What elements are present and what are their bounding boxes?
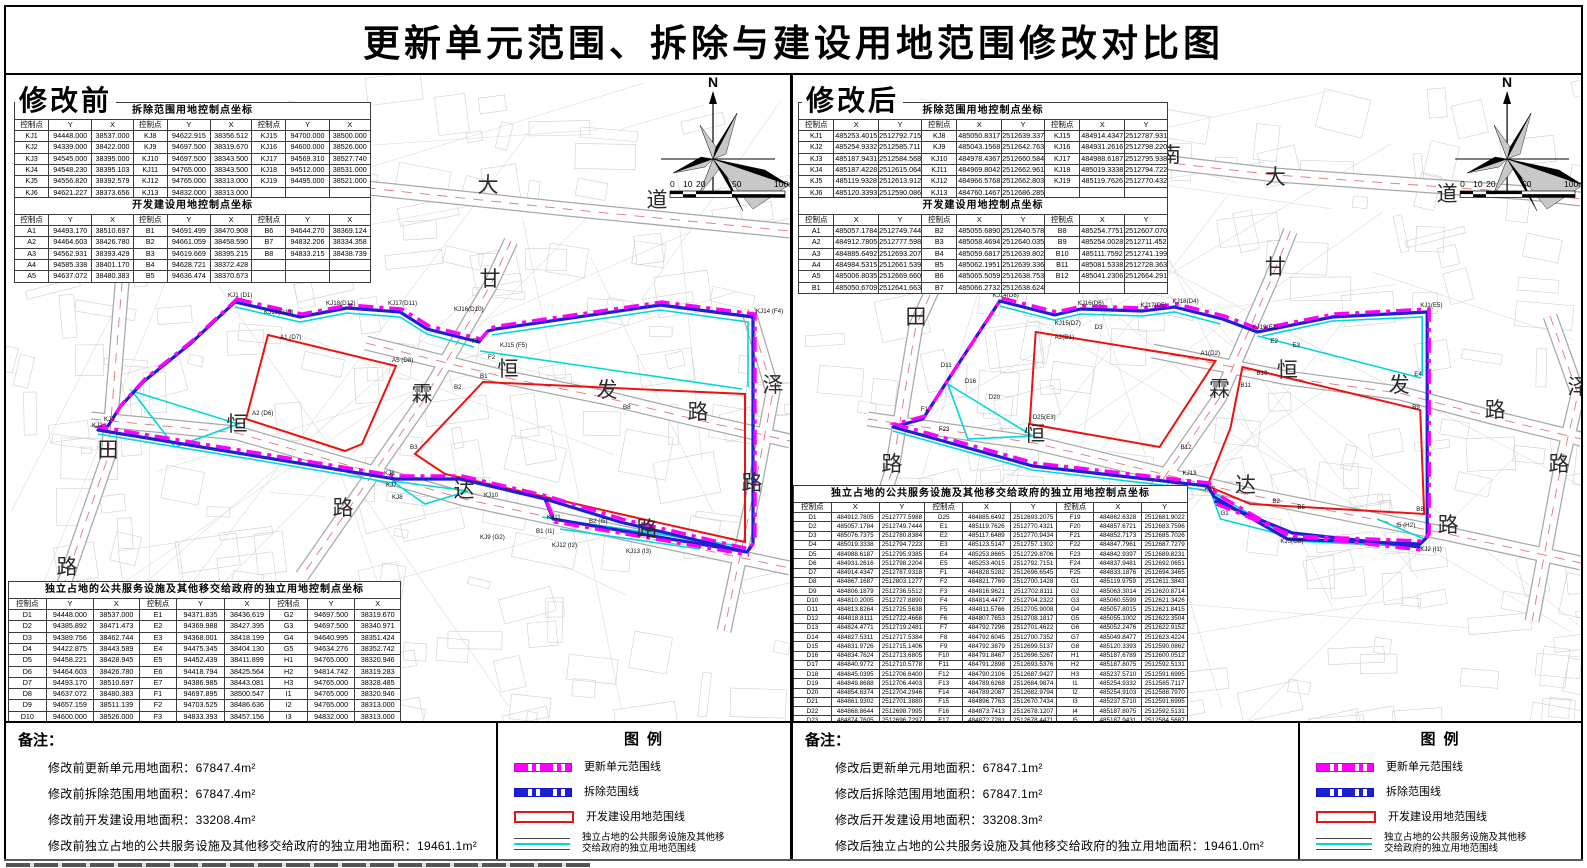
table-row: D13484824.47712512719.2481F7484792.72962… [794,623,1188,632]
column-header: X [1094,502,1142,513]
cell: D18 [794,670,832,679]
column-header: Y [1125,119,1168,131]
notes-after: 备注：修改后更新单元用地面积：67847.1m²修改后拆除范围用地面积：6784… [793,723,1298,859]
cell: E6 [139,666,177,677]
cell: 2512706.4403 [879,679,925,688]
cell: 485050.6709 [834,282,879,293]
cell: B9 [1044,237,1079,248]
legend-label: 拆除范围线 [584,783,639,799]
column-header: 控制点 [921,119,956,131]
street-label: 路 [1438,513,1459,537]
cell: 485117.6489 [963,531,1011,540]
cell: I3 [1056,697,1094,706]
control-point-label: KJ3 [104,416,115,423]
legend-title: 图例 [514,728,780,749]
note-line: 修改前更新单元用地面积：67847.4m² [48,759,496,776]
control-point-label: B3 [410,444,418,451]
cell: 2512729.8706 [1010,550,1056,559]
cell: 484827.5311 [831,633,879,642]
cell: 94493.170 [46,677,93,688]
street-label: 泽 [1568,375,1581,399]
legend-label: 独立占地的公共服务设施及其他移交给政府的独立用地范围线 [1384,833,1527,854]
table-row: KJ494548.23038395.103KJ1194765.00038343.… [15,164,371,175]
cell: 94661.059 [167,237,210,248]
column-header: Y [1125,214,1168,226]
cell: 94422.875 [46,643,93,654]
cell: 38426.780 [94,666,140,677]
cell: 2512621.3426 [1142,596,1188,605]
street-label: 道 [1437,182,1458,206]
cell: F2 [925,577,963,586]
cell: 2512623.4224 [1142,633,1188,642]
cell: 2512795.9385 [879,550,925,559]
cell: A4 [799,259,834,270]
control-point-label: KJ17(D11) [388,300,417,307]
cell: 38425.564 [224,666,270,677]
cell: 94585.338 [49,259,92,270]
cell: F8 [925,633,963,642]
cell: 484811.5766 [963,605,1011,614]
cell: 94832.206 [286,237,329,248]
cell: 485237.5710 [1094,697,1142,706]
control-point-label: B12 [1181,444,1193,451]
table-row: D3485076.73752512780.8384E2485117.648925… [794,531,1188,540]
control-point-label: D16 [965,378,977,385]
cell: 2512685.7026 [1142,531,1188,540]
cell: B3 [133,248,167,259]
cell: 2512794.7223 [879,540,925,549]
cell: G7 [1056,633,1094,642]
control-point-label: B11 [1240,382,1251,389]
cell: F6 [925,614,963,623]
cell: 485006.8035 [834,271,879,282]
street-label: 路 [1485,398,1506,422]
cell: G3 [1056,596,1094,605]
cell: 94765.000 [307,655,354,666]
cell: E1 [139,610,177,621]
cell: 2512693.2075 [1010,513,1056,522]
cell: KJ4 [799,164,834,175]
cell: 484868.8644 [831,707,879,716]
control-point-label: E4 [1414,371,1422,378]
cell: 38392.579 [92,176,133,187]
cell: D19 [794,679,832,688]
cell: A3 [799,248,834,259]
table-row: A2484912.78052512777.5988B3485058.469425… [799,237,1168,248]
cell: 94697.895 [177,689,224,700]
cell: 2512607.0700 [1125,226,1168,237]
cell [1080,282,1125,293]
cell [1125,282,1168,293]
cell: 2512719.2481 [879,623,925,632]
street-label: 路 [637,517,658,541]
street-label: 甘 [1265,255,1286,279]
table-row: KJ2485254.93322512585.7117KJ9485043.1568… [799,142,1168,153]
street-label: 恒 [227,412,248,436]
cell: 38500.000 [329,131,370,142]
cell: 38351.424 [355,632,401,643]
cell: 2512770.4321 [1010,522,1056,531]
cell: 38438.739 [329,248,370,259]
control-point-label: E3 [1292,342,1300,349]
legend-item-development: 开发建设用地范围线 [1316,808,1571,824]
cell: 94562.931 [49,248,92,259]
cell: 2512678.1207 [1010,707,1056,716]
cell: B10 [1044,248,1079,259]
street-label: 大 [1265,165,1286,189]
panel-after: KJ14(D8)KJ15(D7)KJ16(D6)KJ17(D5)KJ18(D4)… [790,71,1581,859]
cell: G6 [1056,623,1094,632]
cell: 2512664.2919 [1125,271,1168,282]
cell: D3 [9,632,47,643]
cell: 2512704.2322 [1010,596,1056,605]
column-header: 控制点 [15,214,49,226]
cell: 485041.2306 [1080,271,1125,282]
cell: F22 [1056,540,1094,549]
cell: 484828.5282 [963,568,1011,577]
column-header: Y [46,598,93,610]
cell: 38480.383 [94,689,140,700]
street-label: 路 [333,496,354,520]
cell: 38458.590 [210,237,251,248]
cell: D3 [794,531,832,540]
table-title: 开发建设用地控制点坐标 [15,198,371,215]
cell: 38428.945 [94,655,140,666]
cell: 485254.0028 [1080,237,1125,248]
column-header: 控制点 [794,502,832,513]
cell: 484814.4477 [963,596,1011,605]
cell: F10 [925,651,963,660]
cell: 2512600.0512 [1142,651,1188,660]
cell: 2512662.8035 [1002,176,1045,187]
cell: 38319.670 [210,142,251,153]
cell: KJ4 [15,164,49,175]
table-row: D21484861.93022512701.3880F15484896.7763… [794,697,1188,706]
cell: G4 [1056,605,1094,614]
demolition-line-swatch-icon [1316,788,1374,797]
table-row: D194448.00038537.000E194371.83538436.619… [9,610,401,621]
street-label: 路 [1549,452,1570,476]
update-line-swatch-icon [1316,763,1374,772]
control-point-label: F1 [921,406,929,413]
cell: F13 [925,679,963,688]
cell: H2 [270,666,308,677]
cell [286,271,329,282]
cell: KJ11 [921,164,956,175]
table-row: D9484806.18792512736.5512F3484816.962125… [794,587,1188,596]
cell: 2512727.8890 [879,596,925,605]
control-point-label: KJ9 (G2) [480,534,505,541]
table-row: KJ294339.00038422.000KJ994697.50038319.6… [15,142,371,153]
cell: D11 [794,605,832,614]
control-point-label: KJ5(G8) [1280,538,1303,545]
cell: F11 [925,660,963,669]
column-header: X [834,119,879,131]
legend-item-independent: 独立占地的公共服务设施及其他移交给政府的独立用地范围线 [514,833,780,854]
cell: 2512684.9874 [1010,679,1056,688]
column-header: Y [879,502,925,513]
table-row: D294385.89238471.473E294369.98838427.395… [9,621,401,632]
cell: 2512706.6400 [879,670,925,679]
street-label: 田 [905,305,926,329]
cell: 2512757.1302 [1010,540,1056,549]
column-header: Y [167,119,210,131]
cell: 485058.4694 [957,237,1002,248]
cell: KJ9 [133,142,167,153]
note-line: 修改后拆除范围用地面积：67847.1m² [835,785,1298,802]
cell: 484873.7413 [963,707,1011,716]
cell: KJ11 [133,164,167,175]
control-point-label: KJ13 (I3) [626,548,651,555]
control-point-label: A1 (D7) [280,334,301,341]
cell: 94545.000 [49,153,92,164]
notes-title: 备注： [18,729,496,750]
cell: 485119.7626 [963,522,1011,531]
cell: G8 [1056,642,1094,651]
table-row: D12484818.81112512722.4668F6484807.76532… [794,614,1188,623]
legend-before: 图例更新单元范围线拆除范围线开发建设用地范围线独立占地的公共服务设施及其他移交给… [496,723,790,859]
cell: 94493.170 [49,226,92,237]
cell: KJ17 [252,153,286,164]
control-point-label: D3 [1095,324,1103,331]
cell: 2512622.9152 [1142,623,1188,632]
north-label: N [1502,74,1512,90]
cell: 38343.500 [210,153,251,164]
cell: 38340.971 [355,621,401,632]
cell: 94644.270 [286,226,329,237]
column-header: X [329,119,370,131]
cell: 38462.744 [94,632,140,643]
control-point-label: A2(D1) [1055,334,1075,341]
cell: 38319.283 [355,666,401,677]
cell: 484824.4771 [831,623,879,632]
cell: 94697.500 [167,142,210,153]
cell: 94339.000 [49,142,92,153]
cell: 485111.7592 [1080,248,1125,259]
cell: 38471.473 [94,621,140,632]
cell: F15 [925,697,963,706]
cell: B11 [1044,259,1079,270]
cell: 94371.835 [177,610,224,621]
control-point-label: KJ18(D12) [326,300,356,307]
panel-label-before: 修改前 [15,79,116,119]
cell: I2 [1056,688,1094,697]
table-row: A494585.33838401.170B494628.72138372.428 [15,259,371,270]
cell: H3 [1056,670,1094,679]
cell: 484789.2087 [963,688,1011,697]
cell: 484842.9397 [1094,550,1142,559]
cell: 38369.124 [329,226,370,237]
cell: 2512585.7117 [879,142,922,153]
cell: 485049.8477 [1094,633,1142,642]
cell: D7 [794,568,832,577]
cell: D21 [794,697,832,706]
legend-label: 拆除范围线 [1386,783,1441,799]
cell: 484837.9481 [1094,559,1142,568]
cell: 2512661.5390 [879,259,922,270]
cell: 484792.6045 [963,633,1011,642]
cell: 38395.215 [210,248,251,259]
cell: 484885.6492 [963,513,1011,522]
cell: 94389.756 [46,632,93,643]
cell: 94512.000 [286,164,329,175]
cell: 2512736.5512 [879,587,925,596]
cell: 2512792.7151 [1010,559,1056,568]
cell: E3 [925,540,963,549]
table-row: A394562.93138393.429B394619.66938395.215… [15,248,371,259]
legend-title: 图例 [1316,728,1571,749]
column-header: X [355,598,401,610]
control-point-label: KJ1(E5) [1420,302,1442,309]
cell: B4 [921,248,956,259]
cell: 94697.500 [167,153,210,164]
scale-tick-label: 10 [1473,179,1483,189]
cell: 2512642.7634 [1002,142,1045,153]
control-point-label: F2 [488,354,496,361]
table-title: 开发建设用地控制点坐标 [799,198,1168,215]
cell: 2512689.8231 [1142,550,1188,559]
cell: 485081.5338 [1080,259,1125,270]
cell: 38313.000 [355,700,401,711]
cell: 2512660.5849 [1002,153,1045,164]
cell: 2512591.6995 [1142,697,1188,706]
cell: F3 [925,587,963,596]
cell: 2512640.5787 [1002,226,1045,237]
scale-tick-label: 50 [732,179,742,189]
cell: 485059.6817 [957,248,1002,259]
column-header: 控制点 [133,119,167,131]
cell: B8 [252,248,286,259]
cell: 2512787.9318 [1125,131,1168,142]
cell: 2512641.6630 [879,282,922,293]
cell: 484845.0395 [831,670,879,679]
cell: D9 [9,700,47,711]
cell: KJ1 [799,131,834,142]
street-label: 恒 [1277,358,1298,382]
column-header: X [834,214,879,226]
cell: 485237.5710 [1094,670,1142,679]
cell: 485254.9103 [1094,688,1142,697]
cell [286,259,329,270]
table-row: D5484988.61872512795.9385E4485253.866525… [794,550,1188,559]
control-point-label: KJ16(D10) [454,306,484,313]
cell: D16 [794,651,832,660]
street-label: 恒 [498,357,519,381]
cell: 2512590.0862 [1142,642,1188,651]
cell: 484912.7805 [831,513,879,522]
cell: A5 [15,271,49,282]
cell: KJ17 [1044,153,1079,164]
cell: KJ8 [921,131,956,142]
cell: 38422.000 [92,142,133,153]
cell: 2512715.1406 [879,642,925,651]
cell: 94765.000 [307,700,354,711]
cell [329,259,370,270]
table-row: D18484845.03952512706.6400F12484790.2106… [794,670,1188,679]
cell: 485119.9328 [834,176,879,187]
cell: 485019.3338 [1080,164,1125,175]
cell: 2512777.5988 [879,237,922,248]
control-point-label: D11 [941,362,952,369]
cell: H1 [1056,651,1094,660]
cell: 94452.439 [177,655,224,666]
cell: 2512620.8714 [1142,587,1188,596]
cell: D8 [9,689,47,700]
cell: 484896.7763 [963,697,1011,706]
cell: KJ3 [799,153,834,164]
cell: KJ18 [1044,164,1079,175]
cell: D5 [794,550,832,559]
cell: 94697.500 [307,610,354,621]
cell: D4 [9,643,47,654]
cell: E4 [139,643,177,654]
cell: 2512621.8415 [1142,605,1188,614]
cell: 2512708.1817 [1010,614,1056,623]
notes-before: 备注：修改前更新单元用地面积：67847.4m²修改前拆除范围用地面积：6784… [6,723,496,859]
column-header: 控制点 [921,214,956,226]
cell: 2512682.9794 [1010,688,1056,697]
cell: F9 [925,642,963,651]
table-row: KJ3485187.94312512584.5687KJ10484978.436… [799,153,1168,164]
scale-tick-label: 100m [1564,179,1581,189]
cell: 484857.6721 [1094,522,1142,531]
cell: 2512777.5988 [879,513,925,522]
cell: 485254.9332 [834,142,879,153]
table-row: D994657.15938511.139F294703.52538486.636… [9,700,401,711]
table-row: D594458.22138428.945E594452.43938411.899… [9,655,401,666]
cell: 2512728.3639 [1125,259,1168,270]
table-header-row: 控制点YX控制点YX控制点YX [15,119,371,131]
cell: 484847.7961 [1094,540,1142,549]
table-row: KJ394545.00038395.000KJ1094697.50038343.… [15,153,371,164]
cell: 484978.4367 [957,153,1002,164]
column-header: 控制点 [925,502,963,513]
cell: 94448.000 [46,610,93,621]
cell: D5 [9,655,47,666]
cell: 2512639.8023 [1002,248,1045,259]
column-header: Y [307,598,354,610]
cell: 484931.2616 [1080,142,1125,153]
cell: B8 [1044,226,1079,237]
cell: KJ12 [921,176,956,187]
cell: 2512683.7596 [1142,522,1188,531]
cell: A1 [799,226,834,237]
cell: 38470.908 [210,226,251,237]
cell: D1 [794,513,832,522]
cell [1044,282,1079,293]
cell: KJ10 [133,153,167,164]
table-row: D16484834.76242512713.6805F10484791.8467… [794,651,1188,660]
control-point-label: KJ12 (I2) [552,542,577,549]
column-header: X [210,119,251,131]
control-point-label: F23 [939,426,950,433]
table-row: D4485019.33382512794.7223E3485123.514725… [794,540,1188,549]
cell: 2512592.5131 [1142,660,1188,669]
note-line: 修改前拆除范围用地面积：67847.4m² [48,785,496,802]
control-point-label: KJ15(D7) [1055,320,1081,327]
column-header: 控制点 [9,598,47,610]
column-header: Y [49,119,92,131]
cell: 2512780.8384 [879,531,925,540]
legend-item-demolition: 拆除范围线 [514,783,780,799]
cell: D6 [9,666,47,677]
scale-tick-label: 50 [1522,179,1532,189]
legend-item-development: 开发建设用地范围线 [514,808,780,824]
legend-label: 开发建设用地范围线 [1388,808,1487,824]
cell: 485052.2476 [1094,623,1142,632]
table-row: D694464.60338426.780E694418.79438425.564… [9,666,401,677]
cell: 2512681.9022 [1142,513,1188,522]
